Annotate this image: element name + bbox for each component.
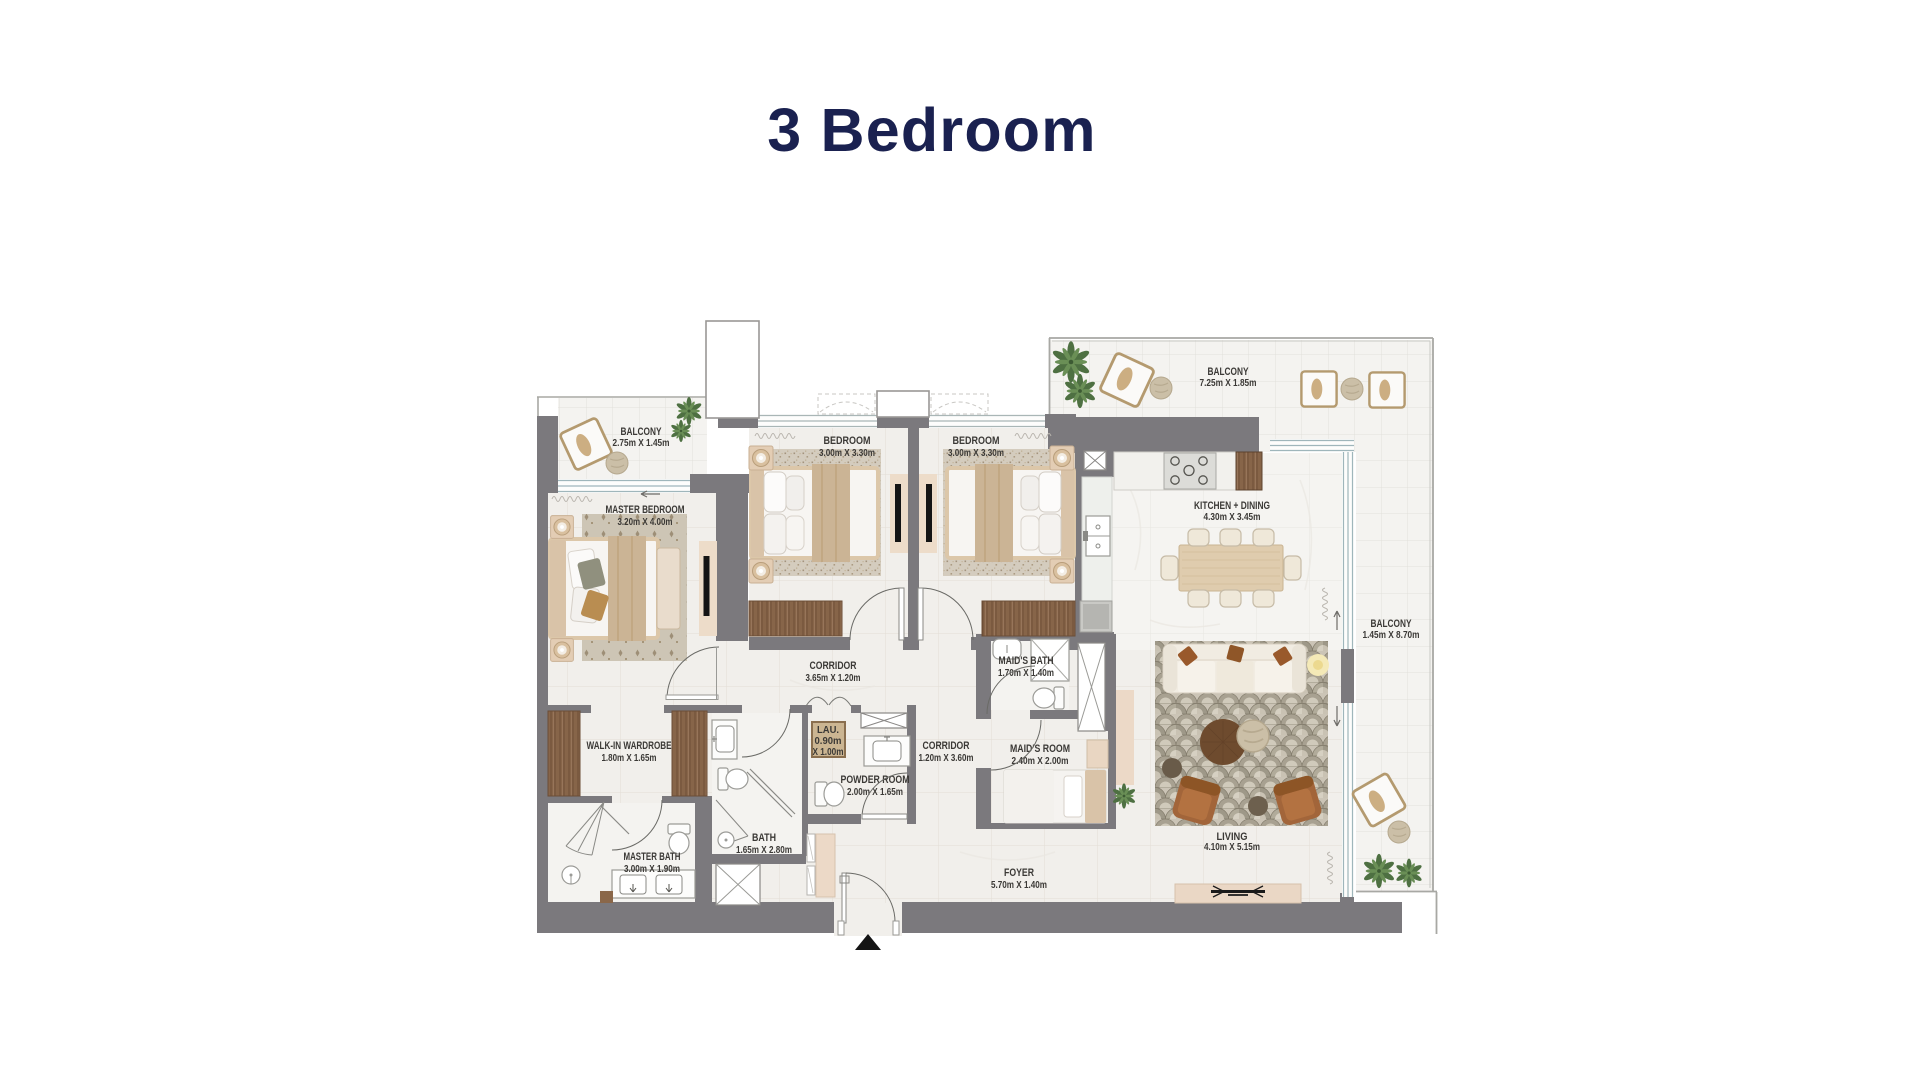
svg-text:2.00m X 1.65m: 2.00m X 1.65m: [847, 786, 903, 798]
svg-text:MAID'S BATH: MAID'S BATH: [999, 655, 1054, 667]
svg-text:3.00m X 3.30m: 3.00m X 3.30m: [948, 447, 1004, 459]
svg-text:BEDROOM: BEDROOM: [824, 435, 871, 447]
svg-text:POWDER ROOM: POWDER ROOM: [841, 774, 910, 786]
svg-text:5.70m X 1.40m: 5.70m X 1.40m: [991, 879, 1047, 891]
svg-text:4.30m X 3.45m: 4.30m X 3.45m: [1204, 511, 1261, 523]
svg-text:1.65m X 2.80m: 1.65m X 2.80m: [736, 844, 792, 856]
svg-text:1.45m X 8.70m: 1.45m X 8.70m: [1363, 629, 1420, 641]
svg-text:CORRIDOR: CORRIDOR: [923, 740, 970, 752]
svg-text:1.70m X 1.40m: 1.70m X 1.40m: [998, 667, 1054, 679]
svg-text:X 1.00m: X 1.00m: [813, 746, 844, 758]
svg-text:3.65m X 1.20m: 3.65m X 1.20m: [806, 672, 861, 684]
svg-text:FOYER: FOYER: [1004, 867, 1034, 879]
svg-text:WALK-IN WARDROBE: WALK-IN WARDROBE: [587, 740, 672, 752]
svg-text:7.25m X 1.85m: 7.25m X 1.85m: [1200, 377, 1257, 389]
svg-text:4.10m X 5.15m: 4.10m X 5.15m: [1204, 841, 1260, 853]
svg-text:1.20m X 3.60m: 1.20m X 3.60m: [919, 752, 974, 764]
svg-text:3.20m X 4.00m: 3.20m X 4.00m: [618, 516, 673, 528]
svg-text:BEDROOM: BEDROOM: [953, 435, 1000, 447]
svg-text:1.80m X 1.65m: 1.80m X 1.65m: [602, 752, 657, 764]
svg-text:3.00m X 3.30m: 3.00m X 3.30m: [819, 447, 875, 459]
svg-text:MAID'S ROOM: MAID'S ROOM: [1010, 743, 1070, 755]
svg-text:MASTER BEDROOM: MASTER BEDROOM: [606, 504, 685, 516]
svg-text:3.00m X 1.90m: 3.00m X 1.90m: [624, 863, 680, 875]
svg-text:MASTER BATH: MASTER BATH: [624, 851, 681, 863]
svg-text:CORRIDOR: CORRIDOR: [810, 660, 857, 672]
svg-text:BATH: BATH: [752, 832, 776, 844]
svg-text:2.75m X 1.45m: 2.75m X 1.45m: [613, 437, 670, 449]
svg-text:3 Bedroom: 3 Bedroom: [767, 96, 1096, 164]
